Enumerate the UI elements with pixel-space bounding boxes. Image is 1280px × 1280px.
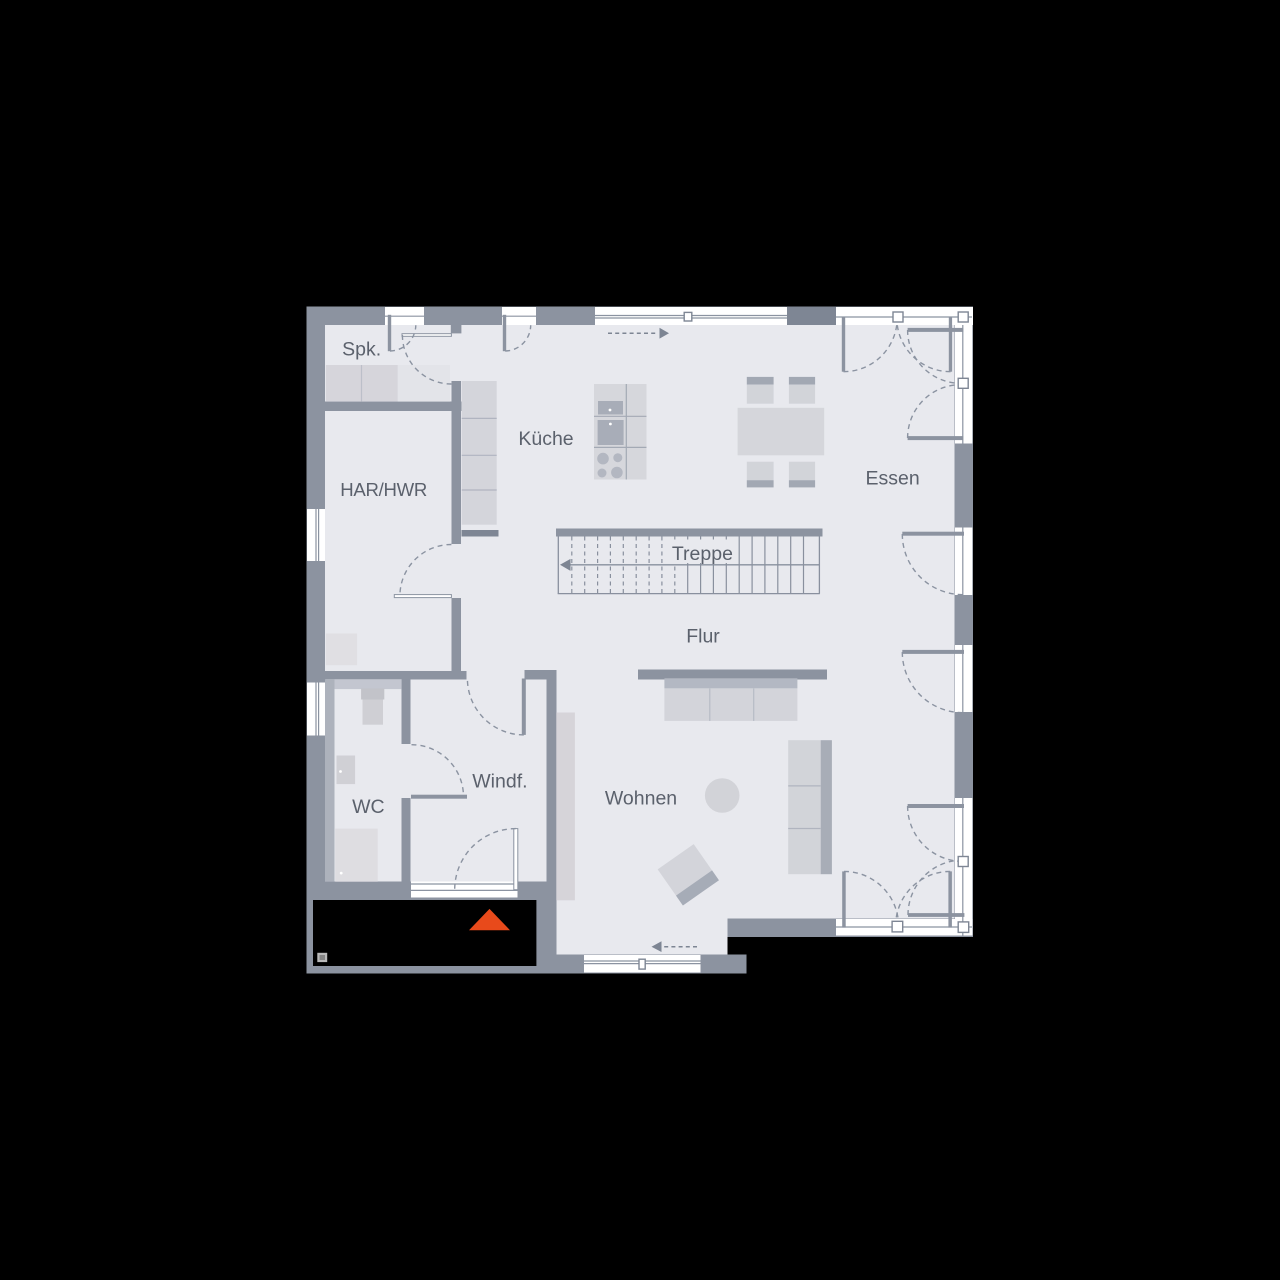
svg-text:Flur: Flur: [686, 626, 720, 648]
svg-text:WC: WC: [352, 796, 385, 818]
svg-text:Spk.: Spk.: [342, 338, 381, 360]
svg-text:Wohnen: Wohnen: [605, 787, 677, 809]
svg-text:Windf.: Windf.: [472, 771, 527, 793]
svg-text:HAR/HWR: HAR/HWR: [340, 479, 427, 500]
svg-text:Treppe: Treppe: [672, 543, 733, 565]
svg-text:Essen: Essen: [865, 467, 919, 489]
svg-text:Küche: Küche: [518, 428, 573, 450]
